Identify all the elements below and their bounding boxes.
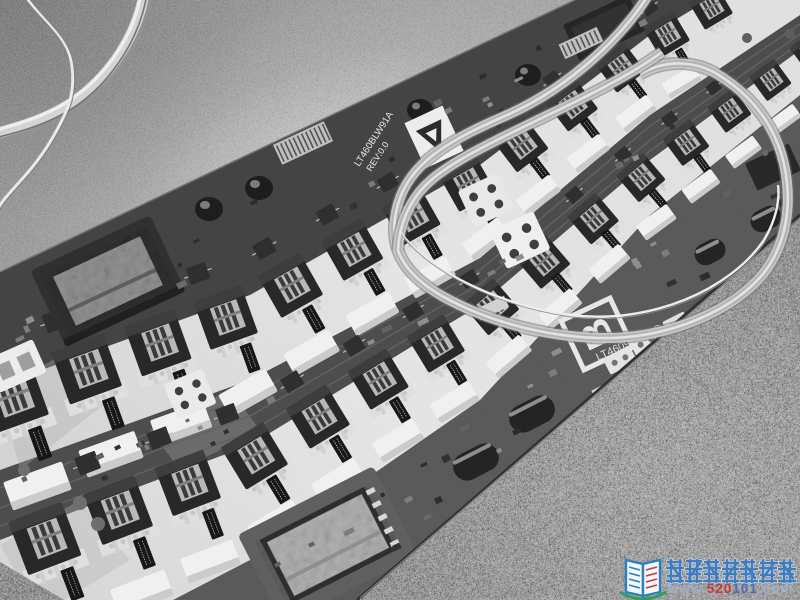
svg-text:www.520101.com: www.520101.com [667,581,793,596]
